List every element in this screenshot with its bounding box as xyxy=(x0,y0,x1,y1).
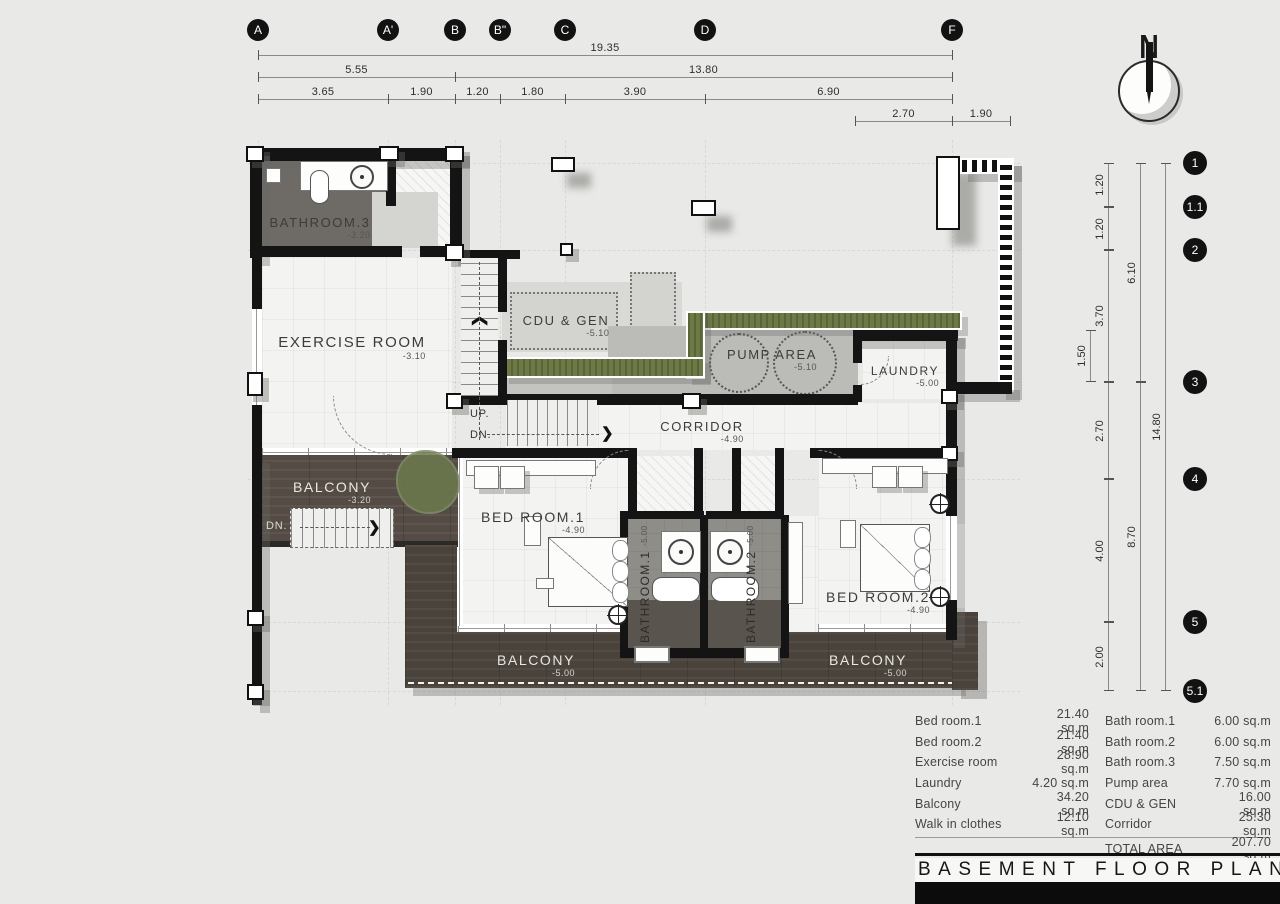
dim-segment: 13.80 xyxy=(455,62,952,78)
north-needle-tip xyxy=(1147,92,1151,104)
area-value: 12.10 sq.m xyxy=(1031,810,1089,838)
grid-bubble-label: C xyxy=(561,23,570,37)
room-elevation: -5.00 xyxy=(640,526,649,546)
stair-up-label: UP. xyxy=(470,408,489,420)
bath2-door-leaf xyxy=(788,522,803,604)
floor-plan-canvas: A A' B B" C D F 19.35 5.55 13.80 3.65 1.… xyxy=(0,0,1280,904)
area-label: Exercise room xyxy=(915,755,1031,769)
table-row: Bed room.1 21.40 sq.m Bath room.1 6.00 s… xyxy=(915,711,1271,732)
grid-bubble-label: B" xyxy=(494,23,506,37)
column-free xyxy=(560,243,573,256)
room-label-pump: PUMP AREA -5.10 xyxy=(727,348,817,372)
column-target-marker xyxy=(930,587,950,607)
stair-dn-label: DN. xyxy=(470,429,491,441)
grid-bubble-b2: B" xyxy=(489,19,511,41)
area-value: 7.50 sq.m xyxy=(1209,755,1271,769)
grid-bubble-label: D xyxy=(701,23,710,37)
wall xyxy=(950,382,1012,394)
stair-main-run xyxy=(507,400,597,446)
dim-row-4: 2.70 1.90 xyxy=(855,106,1010,122)
grid-bubble-label: 5 xyxy=(1192,615,1199,629)
grid-bubble-label: A xyxy=(254,23,262,37)
wall xyxy=(450,148,462,258)
room-name: BALCONY xyxy=(293,479,371,495)
column-free xyxy=(691,200,716,216)
chair xyxy=(474,466,499,489)
dim-row-total: 19.35 xyxy=(258,40,952,56)
room-elevation: -3.20 xyxy=(270,231,371,240)
grid-bubble-a: A xyxy=(247,19,269,41)
room-elevation: -5.00 xyxy=(829,669,907,678)
room-name: BED ROOM.2 xyxy=(826,589,930,605)
area-label: Bed room.1 xyxy=(915,714,1031,728)
dim-v-seg: 1.20 xyxy=(1108,207,1109,250)
grid-bubble-5: 5 xyxy=(1183,610,1207,634)
grid-bubble-b: B xyxy=(444,19,466,41)
wall xyxy=(498,250,507,312)
room-label-cdu: CDU & GEN -5.10 xyxy=(523,314,610,338)
grid-bubble-51: 5.1 xyxy=(1183,679,1207,703)
area-value: 28.90 sq.m xyxy=(1031,748,1089,776)
column xyxy=(247,610,264,626)
room-label-balcony-left: BALCONY -3.20 xyxy=(293,480,371,505)
column xyxy=(445,146,464,162)
wall xyxy=(252,405,262,455)
balcony-bottom-arm xyxy=(405,545,457,637)
grid-bubble-a1: A' xyxy=(377,19,399,41)
wall xyxy=(250,148,462,161)
walkin-closet2-floor xyxy=(741,456,775,512)
dim-segment: 19.35 xyxy=(258,40,952,56)
room-label-laundry: LAUNDRY -5.00 xyxy=(871,365,939,388)
room-name: BATHROOM.2 xyxy=(744,551,758,643)
north-needle xyxy=(1146,42,1153,92)
room-label-exercise: EXERCISE ROOM -3.10 xyxy=(278,335,426,361)
grid-bubble-1: 1 xyxy=(1183,151,1207,175)
column xyxy=(246,146,264,162)
wall-closet-stub xyxy=(732,448,741,518)
grid-bubble-11: 1.1 xyxy=(1183,195,1207,219)
dim-segment: 3.65 xyxy=(258,84,388,100)
dim-v-seg: 2.00 xyxy=(1108,622,1109,691)
room-elevation: -3.20 xyxy=(293,496,371,505)
walkin-closet1-floor xyxy=(637,456,694,512)
stair-arrow-icon: ❯ xyxy=(601,424,614,442)
room-elevation: -4.90 xyxy=(660,435,744,444)
wall-closet-stub xyxy=(694,448,703,518)
room-name: BATHROOM.1 xyxy=(638,551,652,643)
grid-bubble-2: 2 xyxy=(1183,238,1207,262)
room-elevation: -5.10 xyxy=(727,363,817,372)
grid-bubble-d: D xyxy=(694,19,716,41)
dim-v-seg: 4.00 xyxy=(1108,479,1109,622)
column-free xyxy=(551,157,575,172)
bathroom3-gray-pad xyxy=(372,192,438,248)
dim-segment: 1.80 xyxy=(500,84,565,100)
pillow xyxy=(612,582,629,603)
wall xyxy=(598,394,858,405)
area-label: CDU & GEN xyxy=(1089,797,1209,811)
shower-head-icon xyxy=(266,168,281,183)
dim-row-2: 5.55 13.80 xyxy=(258,62,952,78)
area-label: Bed room.2 xyxy=(915,735,1031,749)
plan-title: BASEMENT FLOOR PLAN xyxy=(915,859,1280,881)
room-name: CORRIDOR xyxy=(660,419,744,434)
wall xyxy=(252,455,262,705)
table-total-row: TOTAL AREA 207.70 sq.m xyxy=(915,839,1271,860)
dim-v-total: 14.80 xyxy=(1165,163,1166,691)
bath2-step xyxy=(744,646,780,663)
column xyxy=(941,389,958,404)
column-target-marker xyxy=(930,494,950,514)
dim-v-seg: 1.20 xyxy=(1108,163,1109,207)
table-row: Walk in clothes 12.10 sq.m Corridor 25.3… xyxy=(915,814,1271,835)
room-elevation: -5.00 xyxy=(497,669,575,678)
room-label-bathroom3: BATHROOM.3 -3.20 xyxy=(270,216,371,240)
stair-arrow-icon: ❯ xyxy=(368,518,381,536)
table-row: Exercise room 28.90 sq.m Bath room.3 7.5… xyxy=(915,752,1271,773)
nightstand xyxy=(840,520,856,548)
grid-bubble-label: 1.1 xyxy=(1187,200,1204,214)
sink-icon xyxy=(350,165,374,189)
room-name: LAUNDRY xyxy=(871,364,939,378)
balcony-dn-label: DN. xyxy=(266,520,287,532)
bed-bench xyxy=(536,578,554,589)
column xyxy=(682,393,701,409)
dim-row-3: 3.65 1.90 1.20 1.80 3.90 6.90 xyxy=(258,84,952,100)
column-target-marker xyxy=(608,605,628,625)
pillow xyxy=(914,548,931,569)
area-value: 4.20 sq.m xyxy=(1031,776,1089,790)
bath1-step xyxy=(634,646,670,663)
grid-bubble-label: 5.1 xyxy=(1187,684,1204,698)
wall-bath1-top xyxy=(620,511,704,519)
grid-bubble-label: 1 xyxy=(1192,156,1199,170)
wall-closet-stub xyxy=(775,448,784,518)
sink-icon xyxy=(717,539,743,565)
area-label: Balcony xyxy=(915,797,1031,811)
area-label: Laundry xyxy=(915,776,1031,790)
grid-bubble-f: F xyxy=(941,19,963,41)
dim-segment: 2.70 xyxy=(855,106,952,122)
room-label-bathroom1: BATHROOM.1 -5.00 xyxy=(638,518,652,643)
room-name: BATHROOM.3 xyxy=(270,215,371,230)
pillow xyxy=(612,561,629,582)
title-bar xyxy=(915,882,1280,904)
chair xyxy=(898,466,923,488)
column-topright xyxy=(936,156,960,230)
area-value: 6.00 sq.m xyxy=(1209,714,1271,728)
pillow xyxy=(612,540,629,561)
grid-bubble-label: 4 xyxy=(1192,472,1199,486)
grid-bubble-3: 3 xyxy=(1183,370,1207,394)
room-elevation: -5.00 xyxy=(746,526,755,546)
stair-path-line xyxy=(487,434,599,435)
grid-bubble-label: B xyxy=(451,23,459,37)
grid-bubble-label: A' xyxy=(383,23,393,37)
room-label-balcony-center: BALCONY -5.00 xyxy=(497,653,575,678)
dim-segment: 1.90 xyxy=(388,84,455,100)
grid-bubble-label: 3 xyxy=(1192,375,1199,389)
wall xyxy=(250,148,262,258)
dim-segment: 6.90 xyxy=(705,84,952,100)
room-name: BALCONY xyxy=(497,652,575,668)
dim-v-seg: 2.70 xyxy=(1108,382,1109,479)
toilet-icon xyxy=(310,170,329,204)
room-elevation: -5.10 xyxy=(523,329,610,338)
dim-v-seg: 3.70 xyxy=(1108,250,1109,382)
wall-laundry-top xyxy=(853,330,958,341)
chair xyxy=(872,466,897,488)
stair-path-line xyxy=(300,527,370,528)
room-label-corridor: CORRIDOR -4.90 xyxy=(660,420,744,444)
title-band: BASEMENT FLOOR PLAN xyxy=(915,858,1280,882)
table-row: Bed room.2 21.40 sq.m Bath room.2 6.00 s… xyxy=(915,732,1271,753)
dim-segment: 1.90 xyxy=(952,106,1010,122)
area-label: Bath room.1 xyxy=(1089,714,1209,728)
dim-segment: 3.90 xyxy=(565,84,705,100)
grid-bubble-4: 4 xyxy=(1183,467,1207,491)
room-elevation: -5.00 xyxy=(871,379,939,388)
tree xyxy=(396,450,460,514)
grid-bubble-c: C xyxy=(554,19,576,41)
wall xyxy=(498,340,507,400)
area-table: Bed room.1 21.40 sq.m Bath room.1 6.00 s… xyxy=(915,711,1271,859)
dim-segment: 5.55 xyxy=(258,62,455,78)
planter-lower xyxy=(503,357,705,378)
toilet-icon xyxy=(652,577,700,602)
room-elevation: -4.90 xyxy=(481,526,585,535)
pillow xyxy=(914,527,931,548)
wall xyxy=(853,385,862,402)
chair xyxy=(500,466,525,489)
room-elevation: -4.90 xyxy=(826,606,930,615)
pillow xyxy=(914,569,931,590)
room-elevation: -3.10 xyxy=(278,352,426,361)
north-arrow: N xyxy=(1114,32,1184,124)
wall-right xyxy=(946,600,957,640)
room-label-bathroom2: BATHROOM.2 -5.00 xyxy=(744,518,758,643)
room-name: BED ROOM.1 xyxy=(481,509,585,525)
title-rule xyxy=(915,853,1280,856)
dim-v-mid: 8.70 xyxy=(1140,382,1141,691)
area-value: 7.70 sq.m xyxy=(1209,776,1271,790)
room-label-bedroom2: BED ROOM.2 -4.90 xyxy=(826,590,930,615)
area-label: Pump area xyxy=(1089,776,1209,790)
room-name: PUMP AREA xyxy=(727,347,817,362)
wall xyxy=(250,246,402,257)
grid-bubble-label: 2 xyxy=(1192,243,1199,257)
dim-segment: 1.20 xyxy=(455,84,500,100)
balcony-dashed-line xyxy=(408,682,954,684)
grid-bubble-label: F xyxy=(948,23,955,37)
room-name: EXERCISE ROOM xyxy=(278,334,426,351)
wall-closet-stub xyxy=(628,448,637,518)
area-label: Bath room.3 xyxy=(1089,755,1209,769)
planter-upper xyxy=(686,311,962,330)
wall-bath-divider xyxy=(700,515,708,658)
sink-icon xyxy=(668,539,694,565)
dim-v-mid: 6.10 xyxy=(1140,163,1141,382)
area-label: Bath room.2 xyxy=(1089,735,1209,749)
room-name: CDU & GEN xyxy=(523,313,610,328)
column xyxy=(247,684,264,700)
grid-line xyxy=(248,691,1020,692)
area-label: Corridor xyxy=(1089,817,1209,831)
window-bedroom2 xyxy=(946,516,957,600)
room-label-bedroom1: BED ROOM.1 -4.90 xyxy=(481,510,585,535)
wall xyxy=(252,257,262,309)
dim-v-sub: 1.50 xyxy=(1090,330,1091,382)
room-label-balcony-right: BALCONY -5.00 xyxy=(829,653,907,678)
room-name: BALCONY xyxy=(829,652,907,668)
column xyxy=(247,372,263,396)
area-label: Walk in clothes xyxy=(915,817,1031,831)
column xyxy=(379,146,399,161)
retaining-wall-hatch-v xyxy=(998,158,1014,392)
area-value: 6.00 sq.m xyxy=(1209,735,1271,749)
